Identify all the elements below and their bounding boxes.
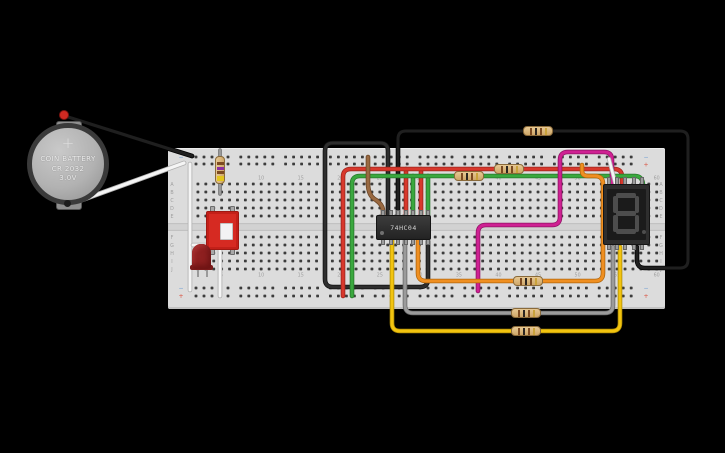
resistor-band-yellow — [217, 176, 224, 181]
resistor-band-gold — [476, 173, 478, 180]
resistor-red-line[interactable] — [494, 164, 524, 174]
resistor-vertical[interactable] — [215, 156, 225, 184]
row-label-G: G — [170, 243, 174, 249]
column-label-25: 25 — [377, 273, 383, 279]
resistor-band-gold — [516, 166, 518, 173]
row-label-J: J — [170, 267, 172, 273]
row-label-F: F — [660, 235, 663, 241]
resistor-band-black — [535, 128, 538, 135]
resistor-band-brown — [530, 128, 533, 135]
resistor-orange-line[interactable] — [513, 276, 543, 286]
resistor-band-black — [506, 166, 509, 173]
row-label-F: F — [171, 235, 174, 241]
pushbutton-body[interactable] — [206, 211, 239, 250]
resistor-band-brown — [518, 310, 521, 317]
display-body[interactable] — [603, 184, 650, 245]
led-body[interactable] — [192, 244, 211, 269]
column-label-15: 15 — [298, 176, 304, 182]
seg-e — [613, 215, 618, 232]
battery-body[interactable]: + COIN BATTERY CR 2032 3.0V — [27, 123, 109, 205]
battery-negative-terminal[interactable] — [64, 200, 71, 207]
resistor-yellow-line[interactable] — [511, 326, 541, 336]
row-label-H: H — [659, 251, 663, 257]
rail-marker: − — [178, 285, 183, 292]
battery-label: COIN BATTERY CR 2032 3.0V — [32, 155, 104, 184]
battery-label-line2: CR 2032 — [32, 165, 104, 175]
row-label-I: I — [171, 259, 172, 265]
row-label-G: G — [659, 243, 663, 249]
rail-marker: − — [643, 285, 648, 292]
row-label-E: E — [659, 214, 662, 220]
column-label-60: 60 — [654, 176, 660, 182]
column-label-10: 10 — [258, 273, 264, 279]
column-label-60: 60 — [654, 273, 660, 279]
rail-marker: + — [178, 293, 183, 300]
battery-label-line1: COIN BATTERY — [32, 155, 104, 165]
resistor-band-gold — [533, 310, 535, 317]
resistor-band-brown — [511, 166, 514, 173]
row-label-C: C — [170, 198, 174, 204]
resistor-gray-line[interactable] — [511, 308, 541, 318]
row-label-B: B — [659, 190, 662, 196]
wire-brown-outline — [368, 157, 383, 217]
resistor-top-loop[interactable] — [523, 126, 553, 136]
column-label-15: 15 — [298, 273, 304, 279]
resistor-band-gold — [545, 128, 547, 135]
column-label-40: 40 — [495, 273, 501, 279]
resistor-band-black — [466, 173, 469, 180]
resistor-band-brown — [217, 162, 224, 165]
rail-marker: − — [643, 154, 648, 161]
row-label-E: E — [170, 214, 173, 220]
rail-marker: + — [643, 162, 648, 169]
seg-f — [613, 196, 618, 213]
row-label-D: D — [659, 206, 663, 212]
resistor-band-brown — [530, 278, 533, 285]
resistor-band-brown — [540, 128, 543, 135]
row-label-A: A — [659, 182, 663, 188]
resistor-green-line[interactable] — [454, 171, 484, 181]
row-label-D: D — [170, 206, 174, 212]
resistor-band-black — [523, 328, 526, 335]
row-label-H: H — [170, 251, 174, 257]
wire-gray-loop[interactable] — [405, 240, 613, 313]
seg-g — [616, 211, 636, 216]
resistor-band-gold — [533, 328, 535, 335]
resistor-band-black — [525, 278, 528, 285]
row-label-I: I — [660, 259, 661, 265]
row-label-B: B — [170, 190, 173, 196]
resistor-band-brown — [518, 328, 521, 335]
seg-dp — [642, 230, 647, 235]
battery-positive-terminal[interactable] — [59, 110, 69, 120]
seg-a — [616, 193, 636, 198]
resistor-band-brown — [520, 278, 523, 285]
seg-d — [616, 229, 636, 234]
rail-marker: + — [643, 293, 648, 300]
resistor-band-brown — [501, 166, 504, 173]
battery-plus-mark: + — [58, 134, 78, 152]
resistor-band-violet — [217, 167, 224, 170]
resistor-band-brown — [461, 173, 464, 180]
seg-b — [635, 196, 640, 213]
circuit-canvas: 1155101015152020252530303535404045455050… — [0, 0, 725, 453]
battery-label-line3: 3.0V — [32, 174, 104, 184]
ic-body[interactable]: 74HC04 — [376, 215, 431, 240]
resistor-band-brown — [528, 310, 531, 317]
column-label-35: 35 — [456, 273, 462, 279]
resistor-band-gold — [535, 278, 537, 285]
resistor-band-brown — [217, 171, 224, 174]
column-label-10: 10 — [258, 176, 264, 182]
resistor-band-brown — [528, 328, 531, 335]
row-label-A: A — [170, 182, 174, 188]
row-label-C: C — [659, 198, 663, 204]
wire-gray-loop-outline — [405, 240, 613, 313]
column-label-50: 50 — [575, 273, 581, 279]
resistor-band-brown — [471, 173, 474, 180]
resistor-band-black — [523, 310, 526, 317]
ic-pin1-dot — [380, 231, 384, 235]
ic-label: 74HC04 — [390, 224, 416, 232]
pushbutton-cap[interactable] — [220, 223, 233, 240]
